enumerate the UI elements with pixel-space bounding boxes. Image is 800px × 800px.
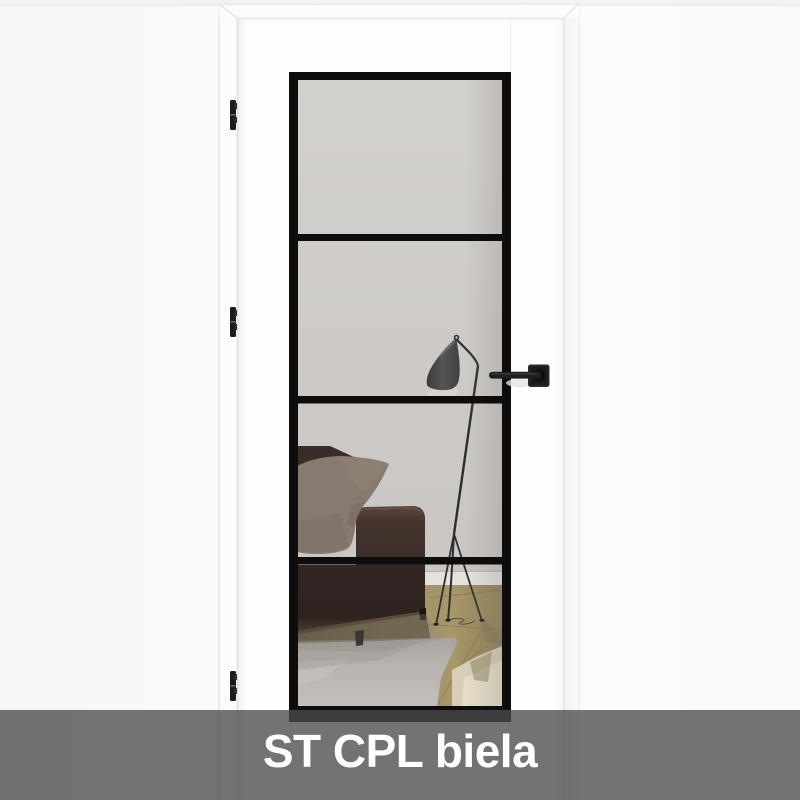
svg-text:ST CPL biela: ST CPL biela [263,725,538,777]
